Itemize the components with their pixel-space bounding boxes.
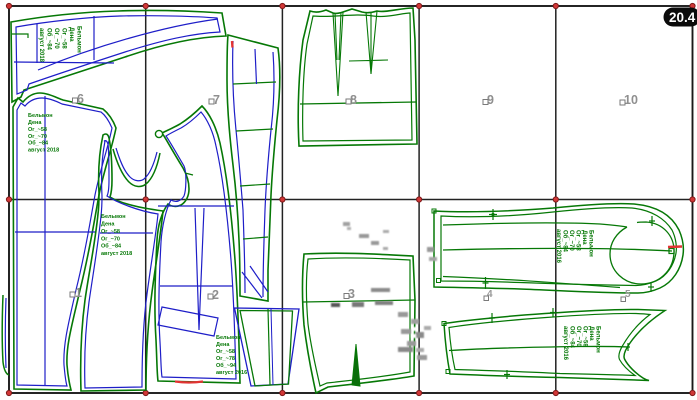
svg-text:август 2016: август 2016 [555,229,561,264]
svg-text:10: 10 [624,93,638,107]
svg-text:Ог_~58: Ог_~58 [216,349,235,355]
svg-text:Ог_~78: Ог_~78 [216,356,235,362]
svg-text:Об_~84: Об_~84 [28,140,49,147]
svg-text:Об_~84: Об_~84 [46,28,53,51]
svg-text:Ог_~70: Ог_~70 [53,28,59,49]
svg-text:Ог_~58: Ог_~58 [28,127,47,133]
svg-text:20.4: 20.4 [669,10,696,25]
svg-text:Дена: Дена [588,326,594,341]
svg-text:Ог_~70: Ог_~70 [568,230,574,251]
svg-text:август 2016: август 2016 [562,326,568,361]
svg-text:Об_~84: Об_~84 [101,243,122,250]
svg-text:Бельмон: Бельмон [216,335,241,341]
svg-text:Бельмон: Бельмон [588,230,594,257]
svg-text:август 2016: август 2016 [216,370,247,376]
svg-text:Ог_~58: Ог_~58 [575,230,581,251]
svg-text:Дена: Дена [68,27,74,42]
svg-text:август 2018: август 2018 [101,251,132,257]
svg-text:Об_~84: Об_~84 [569,326,576,349]
svg-text:Об_~94: Об_~94 [216,362,237,369]
svg-text:Ог_~58: Ог_~58 [582,326,588,347]
svg-text:Бельмон: Бельмон [28,113,53,119]
svg-text:август 2018: август 2018 [38,28,44,63]
svg-text:Об_~84: Об_~84 [562,230,569,253]
svg-text:Дена: Дена [28,120,42,126]
svg-text:Дена: Дена [101,222,115,228]
svg-text:Дена: Дена [216,342,230,348]
svg-text:август 2018: август 2018 [28,148,59,154]
svg-text:Бельмон: Бельмон [595,326,601,353]
svg-text:Ог_~70: Ог_~70 [28,134,47,140]
svg-text:Ог_~58: Ог_~58 [101,229,120,235]
svg-text:Бельмон: Бельмон [76,26,82,53]
svg-text:Ог_~70: Ог_~70 [101,237,120,243]
svg-text:Ог_~58: Ог_~58 [61,28,67,49]
svg-text:Бельмон: Бельмон [101,214,126,220]
svg-text:1: 1 [75,286,82,300]
svg-text:Ог_~70: Ог_~70 [575,326,581,347]
svg-text:Дена: Дена [581,230,587,245]
svg-text:6: 6 [77,92,84,106]
